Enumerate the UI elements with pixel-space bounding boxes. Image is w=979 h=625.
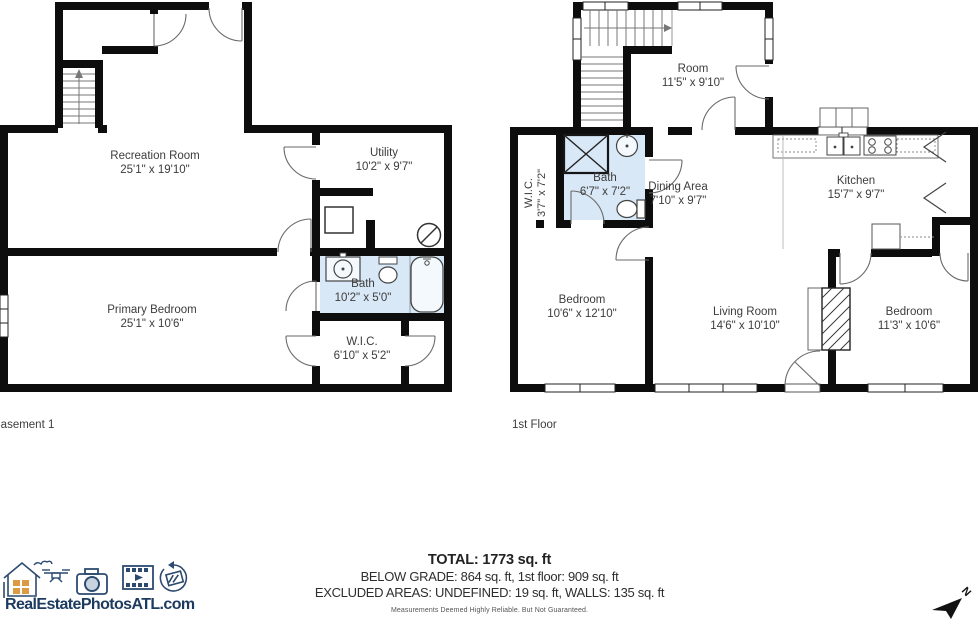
- basement-walls: [0, 2, 452, 392]
- room-label-dining: Dining Area 7'10" x 9'7": [648, 181, 707, 208]
- drone-icon: [34, 561, 70, 582]
- water-heater-icon: [325, 207, 353, 233]
- basement-stairs: [63, 69, 95, 124]
- fan-symbol-icon: [418, 224, 441, 247]
- stove-icon: [864, 136, 896, 155]
- room-label-bedroom-right: Bedroom 11'3" x 10'6": [878, 306, 940, 333]
- exterior-stoop: [820, 108, 868, 127]
- basement-plan: [0, 2, 452, 392]
- camera-icon: [77, 569, 107, 594]
- basement-window: [0, 295, 8, 337]
- room-label-kitchen: Kitchen 15'7" x 9'7": [828, 175, 885, 202]
- 360-tour-icon: [160, 561, 186, 591]
- room-label-primary-bedroom: Primary Bedroom 25'1" x 10'6": [107, 304, 196, 331]
- front-door-frame: [785, 384, 820, 392]
- kitchen-peninsula: [872, 224, 934, 249]
- room-label-basement-bath: Bath 10'2" x 5'0": [335, 278, 392, 305]
- logo-icons: [2, 556, 202, 598]
- room-label-room: Room 11'5" x 9'10": [662, 63, 724, 90]
- room-label-recreation: Recreation Room 25'1" x 19'10": [110, 150, 199, 177]
- floorplan-page: Recreation Room 25'1" x 19'10" Utility 1…: [0, 0, 979, 621]
- room-label-bedroom-left: Bedroom 10'6" x 12'10": [547, 294, 616, 321]
- room-label-first-bath: Bath 6'7" x 7'2": [580, 172, 630, 199]
- room-label-basement-wic: W.I.C. 6'10" x 5'2": [334, 336, 391, 363]
- room-label-first-wic: W.I.C. 3'7" x 7'2": [523, 169, 549, 217]
- house-icon: [4, 563, 40, 598]
- chimney: [808, 288, 850, 350]
- logo-text: RealEstatePhotosATL.com: [5, 596, 195, 614]
- video-film-icon: [123, 566, 153, 589]
- first-floor-caption: 1st Floor: [512, 419, 557, 431]
- room-label-utility: Utility 10'2" x 9'7": [356, 147, 413, 174]
- basement-caption: Basement 1: [0, 419, 54, 431]
- north-arrow-icon: [900, 580, 970, 625]
- room-label-living-room: Living Room 14'6" x 10'10": [710, 306, 779, 333]
